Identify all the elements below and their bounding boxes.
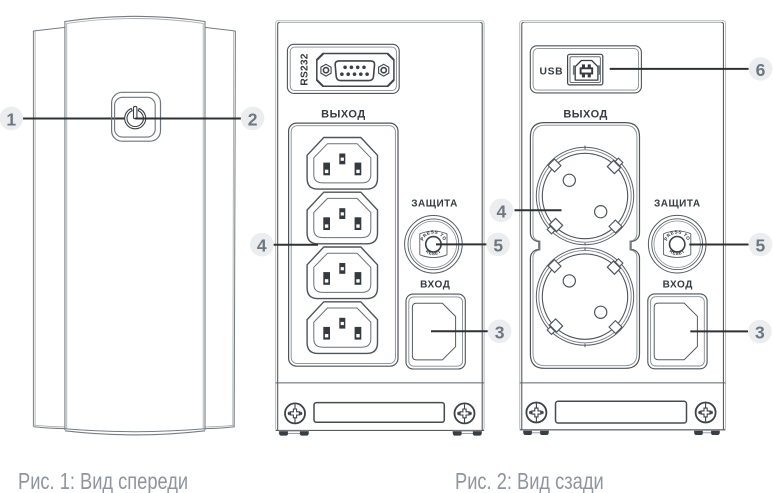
- svg-text:ВЫХОД: ВЫХОД: [563, 109, 608, 121]
- svg-text:ВЫХОД: ВЫХОД: [321, 109, 366, 121]
- svg-text:5: 5: [756, 236, 766, 256]
- svg-text:6: 6: [756, 60, 766, 80]
- svg-text:Рис. 1: Вид спереди: Рис. 1: Вид спереди: [18, 469, 188, 493]
- svg-text:5: 5: [493, 235, 503, 255]
- svg-text:1: 1: [6, 109, 16, 129]
- svg-text:2: 2: [248, 109, 258, 129]
- svg-text:USB: USB: [539, 66, 563, 77]
- svg-text:ЗАЩИТА: ЗАЩИТА: [654, 199, 701, 210]
- svg-text:ВХОД: ВХОД: [420, 279, 450, 290]
- svg-text:3: 3: [495, 322, 505, 342]
- svg-text:ЗАЩИТА: ЗАЩИТА: [411, 199, 458, 210]
- svg-text:4: 4: [497, 201, 507, 221]
- svg-text:Рис. 2: Вид сзади: Рис. 2: Вид сзади: [455, 469, 604, 493]
- svg-text:3: 3: [755, 323, 765, 343]
- svg-text:RS232: RS232: [299, 53, 310, 85]
- svg-text:4: 4: [257, 236, 267, 256]
- svg-text:ВХОД: ВХОД: [663, 279, 693, 290]
